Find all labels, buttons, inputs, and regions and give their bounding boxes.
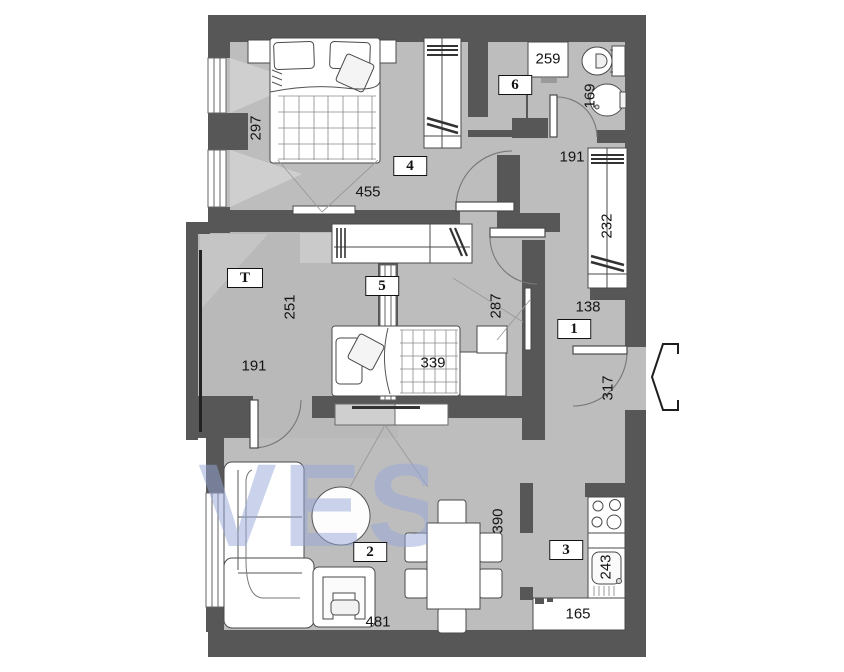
wall-living-left-upper [206, 420, 224, 493]
chair-bottom [438, 608, 466, 633]
leaf-bathroom [550, 95, 557, 137]
leaf-room4 [456, 202, 514, 211]
dim-terrace-height: 251 [282, 294, 299, 319]
room-label-kids: 5 [365, 276, 399, 296]
leaf-room5 [490, 228, 545, 237]
window-bedroom-1 [208, 58, 226, 113]
leaf-entrance [573, 346, 627, 354]
chair-left-2 [405, 569, 428, 598]
dim-bath-sink: 169 [582, 83, 599, 108]
bath-partition-line [526, 92, 528, 132]
entrance-arrow-icon [652, 344, 678, 410]
dim-room4-height: 297 [248, 115, 265, 140]
chair-right-1 [479, 533, 502, 562]
chair-left-1 [405, 533, 428, 562]
wall-room4-right [468, 15, 488, 117]
dim-room5-height: 287 [488, 293, 505, 318]
wall-bath-bottom-right [597, 130, 625, 143]
counter-fitting-1 [535, 598, 544, 604]
room-label-bedroom: 4 [393, 156, 427, 176]
dim-kitchen-sink: 243 [598, 554, 615, 579]
wall-living-left-lower [206, 607, 224, 632]
wall-corridor [497, 155, 520, 232]
chair-right-2 [479, 569, 502, 598]
double-bed [270, 38, 380, 163]
dim-room5-bed: 339 [420, 355, 445, 372]
tv-cabinet [335, 404, 448, 425]
floor-plan-drawing [0, 0, 844, 672]
window-living [206, 493, 224, 607]
dim-bath-width: 259 [535, 51, 560, 68]
pillow-left [274, 41, 315, 69]
dim-room4-width: 455 [355, 184, 380, 201]
chair-top [438, 500, 466, 525]
wall-kitchen-left-upper [520, 483, 533, 533]
desk [460, 352, 506, 396]
wall-bottom [208, 630, 646, 657]
corner-sofa [224, 462, 314, 628]
wall-left-pier [208, 113, 248, 150]
room-label-living: 2 [353, 542, 387, 562]
wardrobe-room4 [424, 38, 461, 148]
dim-wardrobe: 232 [599, 213, 616, 238]
dim-entrance: 317 [600, 375, 617, 400]
wall-kitchen-left-lower [520, 587, 533, 600]
room-label-kitchen: 3 [549, 540, 583, 560]
window-bedroom-2 [208, 150, 226, 207]
wall-bath-left-chunk [512, 118, 548, 138]
wall-right-lower [625, 410, 646, 657]
floor-plan-canvas: VES 297 455 259 169 191 232 138 317 287 … [0, 0, 844, 672]
round-rug [312, 487, 370, 545]
counter-fitting-2 [547, 598, 553, 602]
dim-living-height: 390 [490, 508, 507, 533]
leaf-terrace [250, 400, 258, 448]
side-table [477, 326, 507, 353]
toilet [582, 46, 625, 76]
wall-right-upper [625, 15, 646, 347]
room-label-hallway: 1 [557, 319, 591, 339]
wall-left-a [208, 15, 230, 58]
wall-kitchen-top [585, 483, 625, 497]
room-label-terrace: T [227, 268, 263, 288]
wall-bath-bottom-thin [468, 130, 513, 137]
shower-tray-mark [541, 78, 557, 83]
stove [588, 497, 625, 533]
dim-kitchen-counter: 165 [565, 606, 590, 623]
kitchen-counter-mid [588, 533, 625, 548]
tv [352, 406, 420, 409]
dim-hall-width: 138 [575, 299, 600, 316]
dim-terrace-width: 191 [241, 358, 266, 375]
terrace-glazing-line [199, 250, 202, 432]
dining-table [427, 523, 480, 609]
nightstand-left [248, 40, 272, 63]
wardrobe-room5 [332, 224, 472, 263]
dim-living-width: 481 [365, 614, 390, 631]
hall-mirror-strip [525, 288, 531, 350]
dim-hall-top: 191 [559, 149, 584, 166]
room-label-bathroom: 6 [498, 75, 532, 95]
